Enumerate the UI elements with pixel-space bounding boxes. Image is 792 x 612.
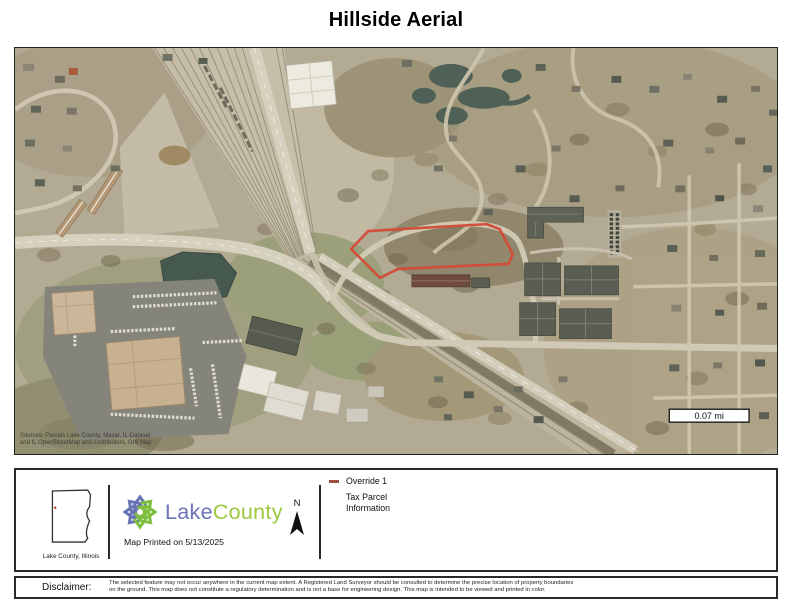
county-inset: Lake County, Illinois (32, 488, 110, 560)
logo-word-county: County (213, 500, 283, 524)
disclaimer-text: The selected feature may not occur anywh… (109, 580, 573, 594)
page-title: Hillside Aerial (0, 9, 792, 32)
aerial-map: 0.07 mi Sources: Parcels Lake County, Ma… (15, 48, 777, 454)
north-arrow: N (285, 499, 309, 538)
map-attribution: Sources: Parcels Lake County, Maxar, IL-… (20, 433, 152, 446)
footer-divider (108, 485, 110, 559)
disclaimer-box: Disclaimer: The selected feature may not… (14, 576, 778, 599)
override-line-swatch (329, 480, 339, 483)
aerial-map-frame: 0.07 mi Sources: Parcels Lake County, Ma… (14, 47, 778, 455)
north-label: N (285, 499, 309, 509)
footer-box: Lake County, Illinois LakeCounty (14, 468, 778, 572)
scale-label: 0.07 mi (694, 411, 723, 421)
logo-text: LakeCounty (165, 500, 283, 525)
logo-star-icon (120, 492, 160, 532)
lake-county-logo: LakeCounty (120, 492, 283, 532)
legend-layer-label: Tax Parcel Information (346, 492, 406, 514)
north-arrow-icon (288, 509, 306, 537)
county-outline-icon (45, 488, 97, 546)
disclaimer-line2: on the ground. This map does not constit… (109, 587, 573, 594)
county-inset-caption: Lake County, Illinois (32, 553, 110, 560)
logo-word-lake: Lake (165, 500, 213, 524)
map-printed-date: Map Printed on 5/13/2025 (124, 537, 224, 547)
attribution-line2: and IL OpenStreetMap and contributors, G… (20, 440, 152, 446)
disclaimer-label: Disclaimer: (42, 582, 91, 593)
location-dot-icon (54, 507, 56, 509)
scale-bar: 0.07 mi (669, 409, 749, 422)
legend-item-label: Override 1 (346, 476, 387, 486)
attribution-line1: Sources: Parcels Lake County, Maxar, IL-… (20, 433, 151, 439)
legend-item-override: Override 1 (329, 476, 406, 486)
footer-divider (319, 485, 321, 559)
legend: Override 1 Tax Parcel Information (329, 476, 406, 514)
disclaimer-line1: The selected feature may not occur anywh… (109, 580, 573, 587)
